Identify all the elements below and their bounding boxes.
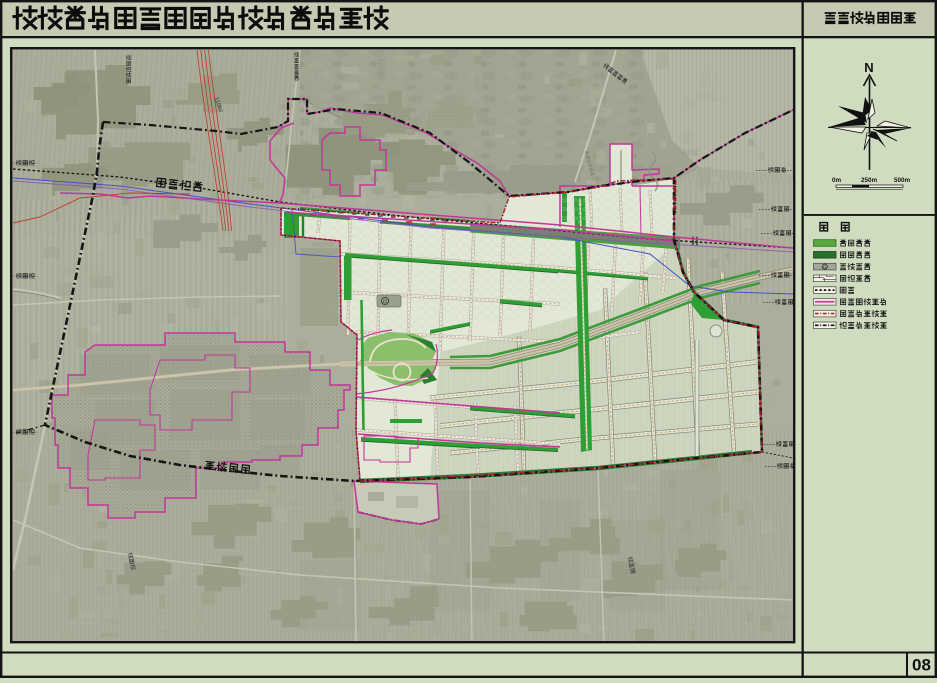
svg-text:500m: 500m [894, 177, 911, 184]
svg-text:N: N [864, 60, 873, 75]
svg-text:0m: 0m [832, 177, 842, 184]
svg-text:250m: 250m [861, 177, 878, 184]
svg-text:G: G [823, 265, 827, 270]
svg-text:08: 08 [912, 656, 931, 675]
svg-text:G: G [383, 300, 387, 306]
